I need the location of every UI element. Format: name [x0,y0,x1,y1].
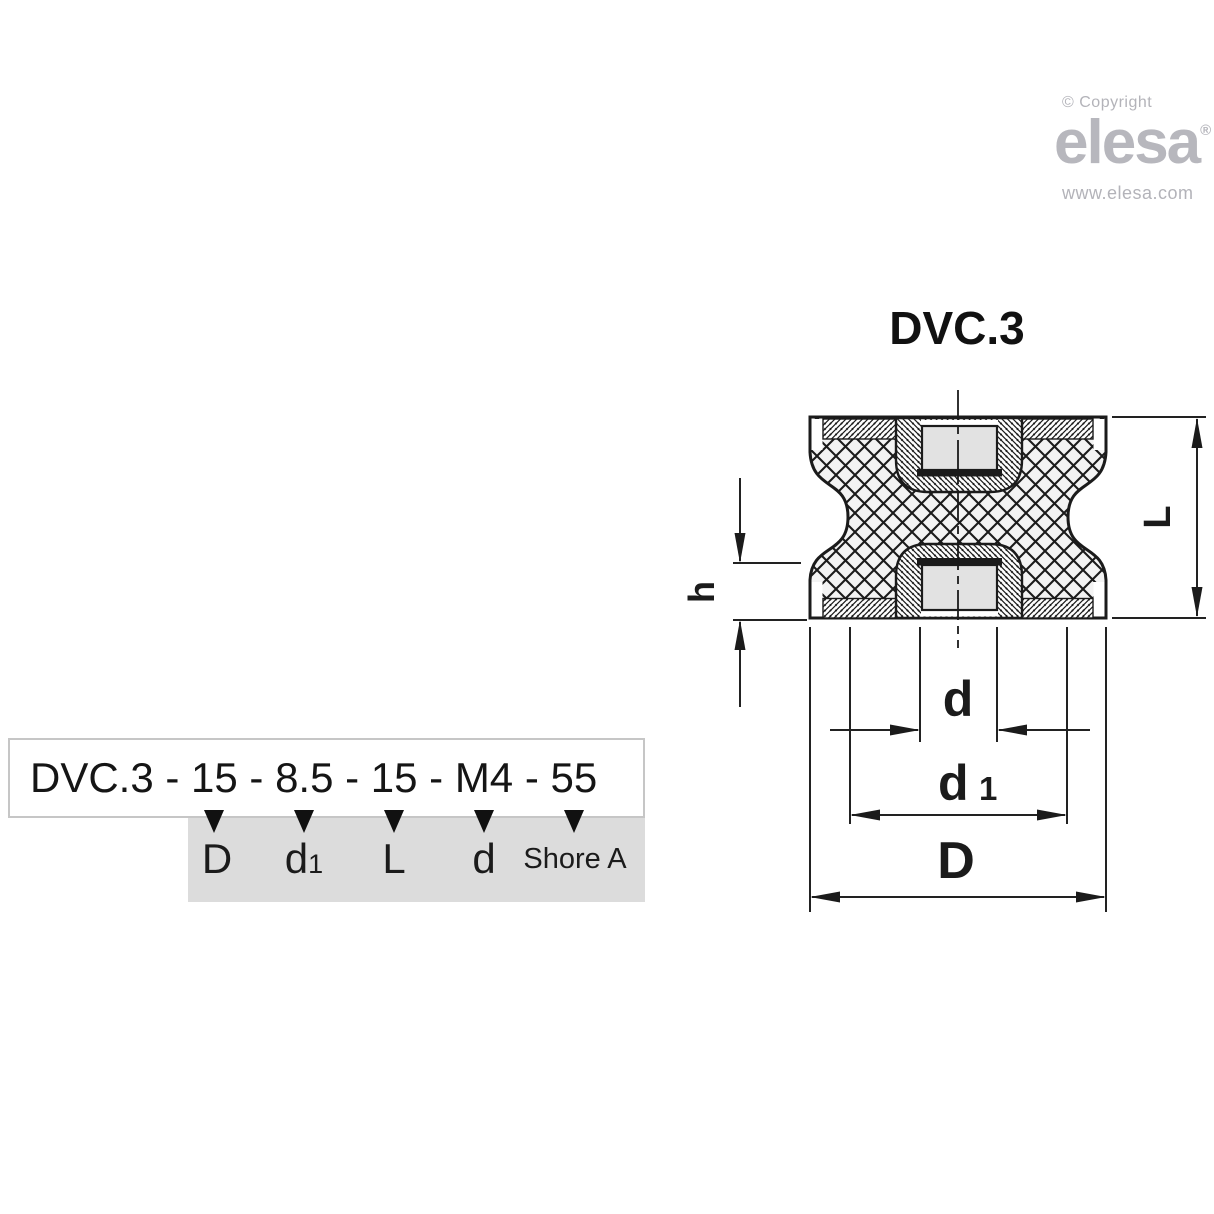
code-arrow-shoreA-icon [564,810,584,833]
dimension-h: h [681,478,807,707]
elesa-logo: elesa® [1054,112,1211,174]
code-label-d1-base: d [285,835,308,882]
code-label-d1-sub: 1 [308,849,323,879]
drawing-title: DVC.3 [857,301,1057,355]
bottom-threaded-insert [896,544,1022,618]
dim-label-h: h [681,581,722,603]
dimension-L: L [1112,417,1206,618]
order-code-text: DVC.3 - 15 - 8.5 - 15 - M4 - 55 [30,757,597,799]
code-label-d1: d1 [285,838,323,880]
catalog-page: L h d d 1 [0,0,1214,1214]
code-arrow-d1-icon [294,810,314,833]
code-arrow-D-icon [204,810,224,833]
dimension-d: d [830,627,1090,742]
code-label-shoreA: Shore A [523,845,626,874]
dim-label-L: L [1137,505,1179,528]
technical-drawing: L h d d 1 [0,0,1214,1214]
top-threaded-hole [922,426,997,470]
bottom-insert-rim [921,611,998,617]
elesa-wordmark: elesa [1054,108,1199,177]
code-arrow-L-icon [384,810,404,833]
website-url: www.elesa.com [1062,183,1194,204]
bottom-hole-top-bar [917,558,1002,566]
code-label-L: L [382,838,405,880]
dim-label-d: d [943,671,974,727]
top-hole-bottom-bar [917,469,1002,477]
dim-label-d1-base: d [938,755,969,811]
bottom-threaded-hole [922,565,997,610]
dim-label-D: D [937,832,975,890]
code-label-D: D [202,838,232,880]
registered-trademark-icon: ® [1200,122,1211,139]
code-arrow-d-icon [474,810,494,833]
dim-label-d1-sub: 1 [979,770,997,807]
top-threaded-insert [896,418,1022,492]
code-label-d: d [472,838,495,880]
